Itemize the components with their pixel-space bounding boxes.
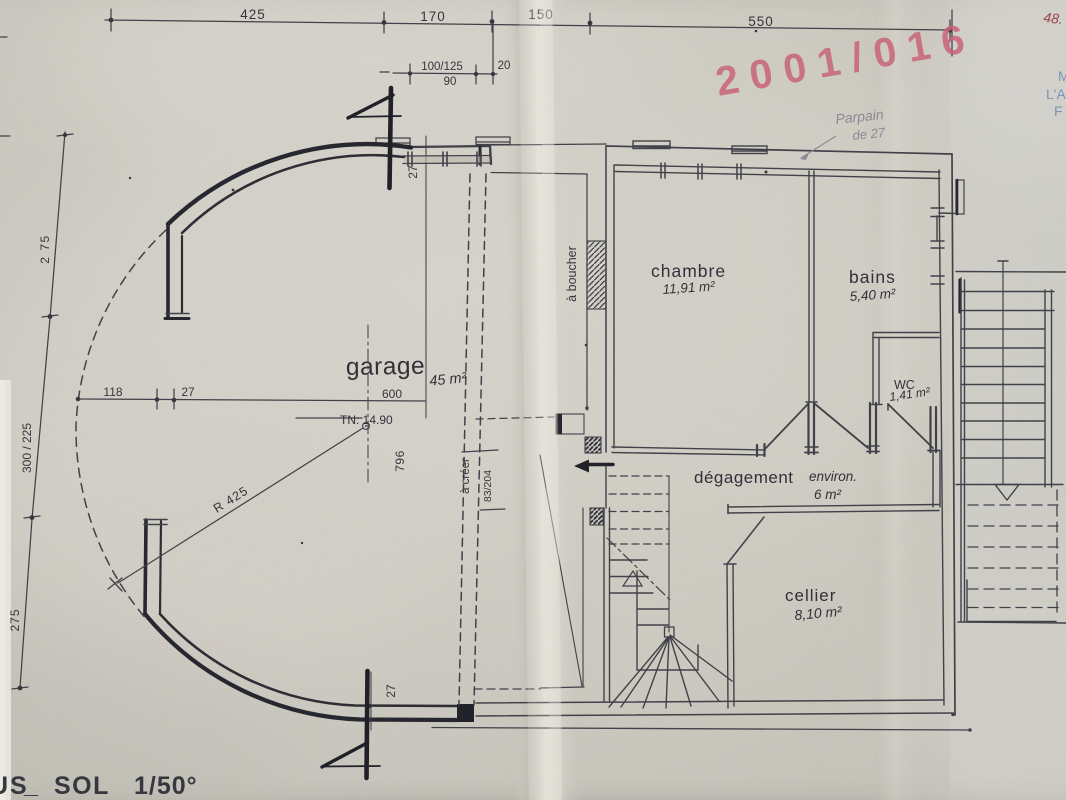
svg-text:environ.: environ. <box>809 469 857 484</box>
svg-text:M: M <box>1058 68 1066 84</box>
svg-text:27: 27 <box>181 385 195 399</box>
svg-text:83/204: 83/204 <box>482 470 494 502</box>
svg-text:118: 118 <box>103 385 122 399</box>
svg-text:600: 600 <box>382 387 402 401</box>
svg-text:2 75: 2 75 <box>38 234 52 263</box>
svg-text:300 / 225: 300 / 225 <box>20 423 34 473</box>
svg-text:SOL: SOL <box>54 772 110 800</box>
svg-text:275: 275 <box>8 608 22 631</box>
svg-text:1/50°: 1/50° <box>134 772 198 800</box>
svg-text:100/125: 100/125 <box>421 61 463 73</box>
svg-text:6 m²: 6 m² <box>814 487 842 502</box>
svg-text:20: 20 <box>498 60 511 72</box>
svg-text:_: _ <box>23 771 39 799</box>
svg-text:L'A: L'A <box>1046 86 1066 102</box>
svg-text:796: 796 <box>393 450 407 472</box>
svg-text:550: 550 <box>748 14 774 29</box>
svg-text:cellier: cellier <box>785 586 836 605</box>
svg-text:170: 170 <box>420 9 446 24</box>
svg-text:bains: bains <box>849 267 896 287</box>
svg-text:garage: garage <box>346 353 426 381</box>
svg-text:F: F <box>1054 103 1063 119</box>
svg-text:dégagement: dégagement <box>694 468 794 487</box>
svg-text:90: 90 <box>444 76 457 88</box>
svg-text:TN: 14.90: TN: 14.90 <box>340 413 393 427</box>
svg-text:425: 425 <box>240 7 266 22</box>
svg-text:48.: 48. <box>1043 9 1064 27</box>
svg-text:chambre: chambre <box>651 261 726 281</box>
svg-text:à boucher: à boucher <box>565 246 579 302</box>
svg-text:27: 27 <box>406 165 420 179</box>
svg-text:à créer: à créer <box>460 458 472 494</box>
svg-text:27: 27 <box>384 684 398 698</box>
